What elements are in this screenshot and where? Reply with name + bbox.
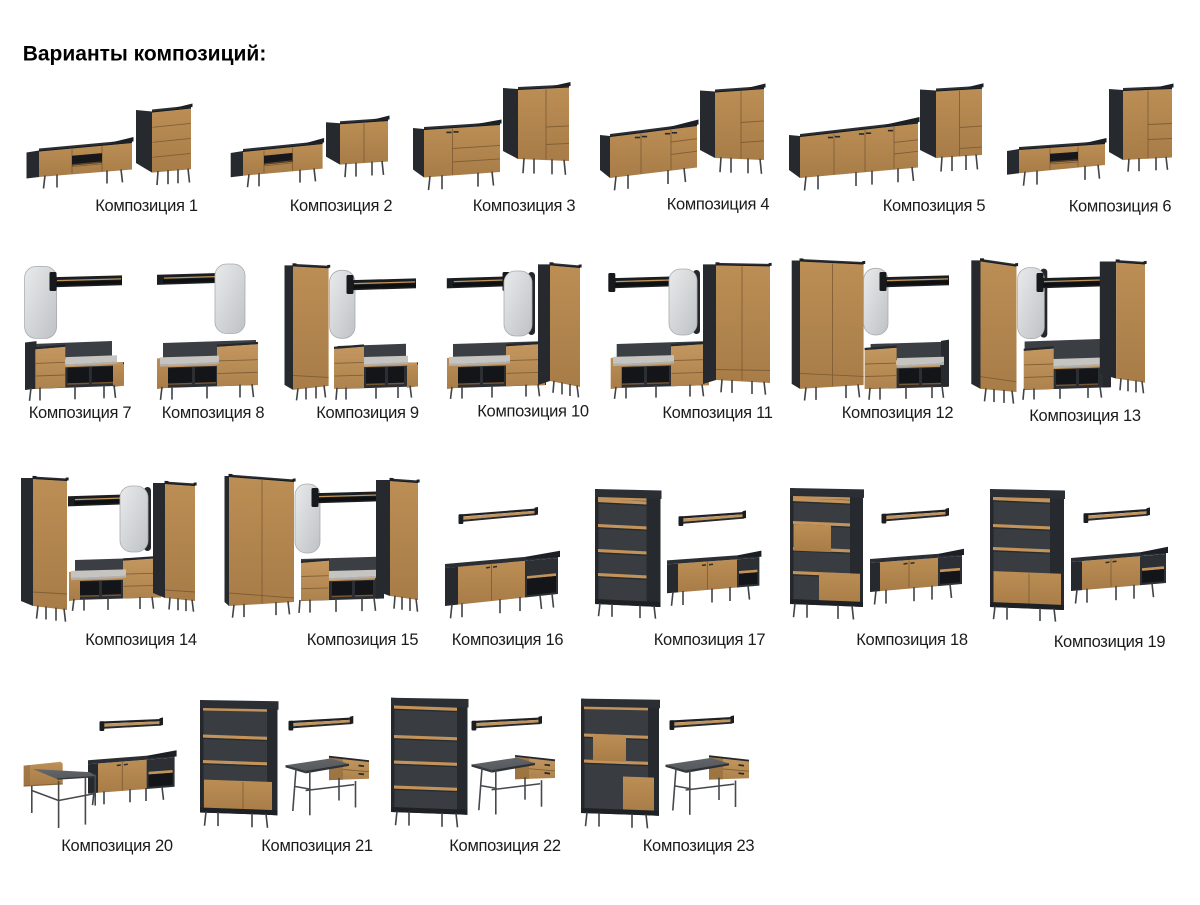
svg-text:Композиция 23: Композиция 23 <box>643 837 755 855</box>
svg-text:Композиция 21: Композиция 21 <box>261 837 373 855</box>
svg-text:Композиция 16: Композиция 16 <box>452 631 564 649</box>
svg-text:Композиция 9: Композиция 9 <box>316 404 419 422</box>
svg-text:Композиция 6: Композиция 6 <box>1069 198 1172 216</box>
svg-text:Композиция 14: Композиция 14 <box>85 631 197 649</box>
svg-text:Композиция 18: Композиция 18 <box>856 631 968 649</box>
svg-text:Композиция 13: Композиция 13 <box>1029 407 1141 425</box>
svg-text:Композиция 17: Композиция 17 <box>654 631 766 649</box>
svg-text:Композиция 15: Композиция 15 <box>307 631 419 649</box>
svg-text:Композиция 19: Композиция 19 <box>1054 633 1166 651</box>
svg-text:Композиция 2: Композиция 2 <box>290 197 393 215</box>
svg-text:Композиция 8: Композиция 8 <box>162 404 265 422</box>
svg-text:Композиция 3: Композиция 3 <box>473 197 576 215</box>
svg-text:Композиция 5: Композиция 5 <box>883 197 986 215</box>
svg-text:Композиция 12: Композиция 12 <box>842 404 954 422</box>
svg-text:Композиция 11: Композиция 11 <box>662 404 772 422</box>
svg-text:Композиция 1: Композиция 1 <box>95 197 198 215</box>
svg-text:Композиция 10: Композиция 10 <box>477 403 589 421</box>
svg-text:Композиция 20: Композиция 20 <box>61 837 173 855</box>
svg-text:Композиция 7: Композиция 7 <box>29 404 132 422</box>
svg-text:Композиция 22: Композиция 22 <box>449 837 561 855</box>
svg-text:Композиция 4: Композиция 4 <box>667 196 770 214</box>
svg-text:Варианты композиций:: Варианты композиций: <box>23 43 267 66</box>
